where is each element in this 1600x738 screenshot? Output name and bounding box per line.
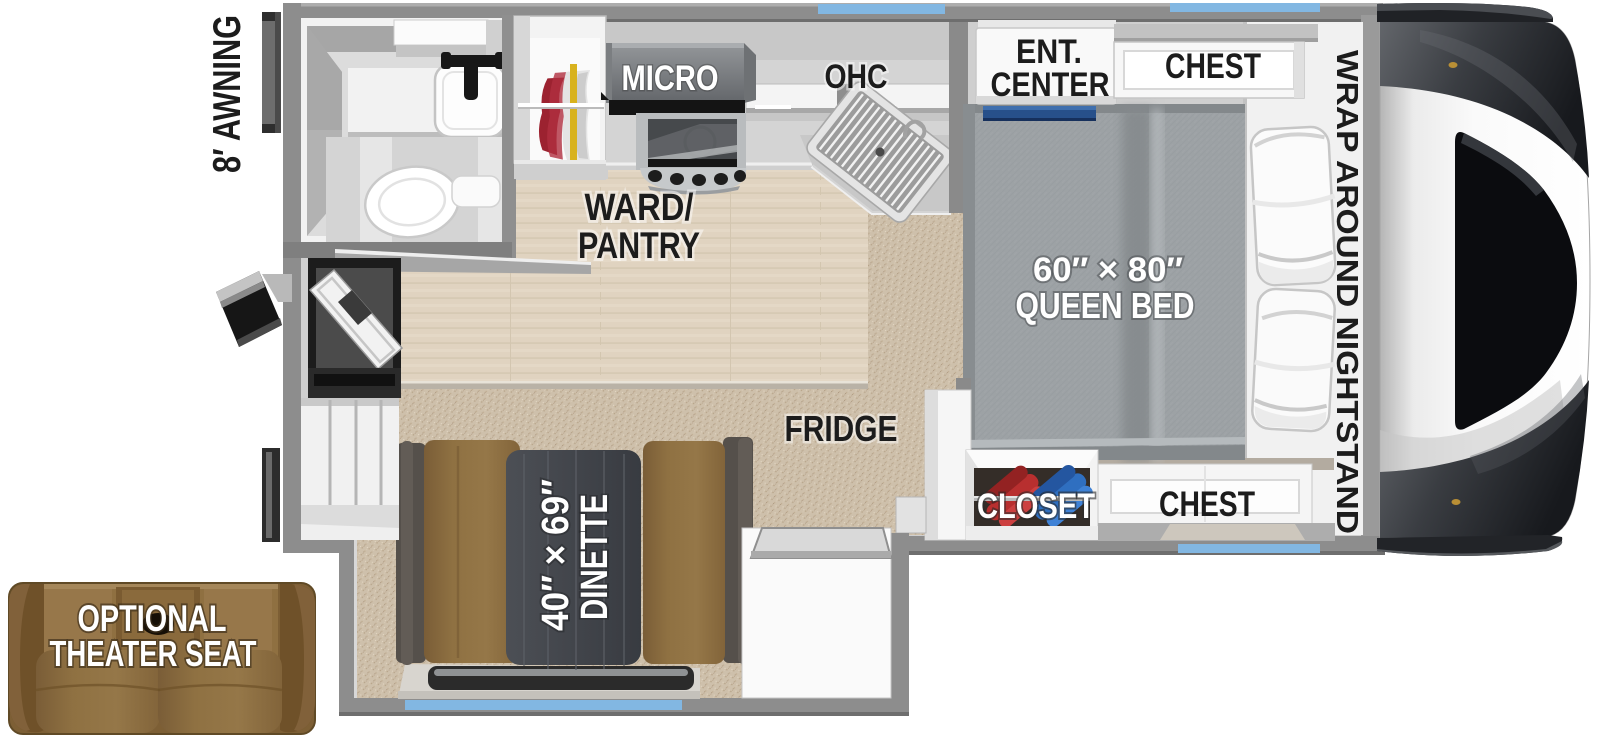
svg-text:FRIDGE: FRIDGE: [785, 408, 898, 449]
svg-text:40″ × 69″: 40″ × 69″: [535, 479, 577, 631]
svg-text:QUEEN BED: QUEEN BED: [1016, 285, 1195, 326]
svg-text:60″ × 80″: 60″ × 80″: [1033, 251, 1183, 289]
svg-text:THEATER SEAT: THEATER SEAT: [50, 633, 257, 674]
svg-text:CENTER: CENTER: [991, 66, 1110, 104]
svg-text:CHEST: CHEST: [1165, 47, 1261, 86]
svg-text:DINETTE: DINETTE: [574, 494, 616, 620]
svg-text:CHEST: CHEST: [1159, 485, 1255, 524]
svg-text:MICRO: MICRO: [622, 59, 719, 98]
svg-text:PANTRY: PANTRY: [578, 225, 700, 266]
svg-text:CLOSET: CLOSET: [977, 487, 1095, 526]
svg-text:OHC: OHC: [825, 58, 888, 96]
svg-text:WRAP AROUND NIGHTSTAND: WRAP AROUND NIGHTSTAND: [1330, 50, 1365, 534]
svg-text:8′ AWNING: 8′ AWNING: [206, 15, 249, 173]
svg-text:WARD/: WARD/: [585, 187, 694, 229]
